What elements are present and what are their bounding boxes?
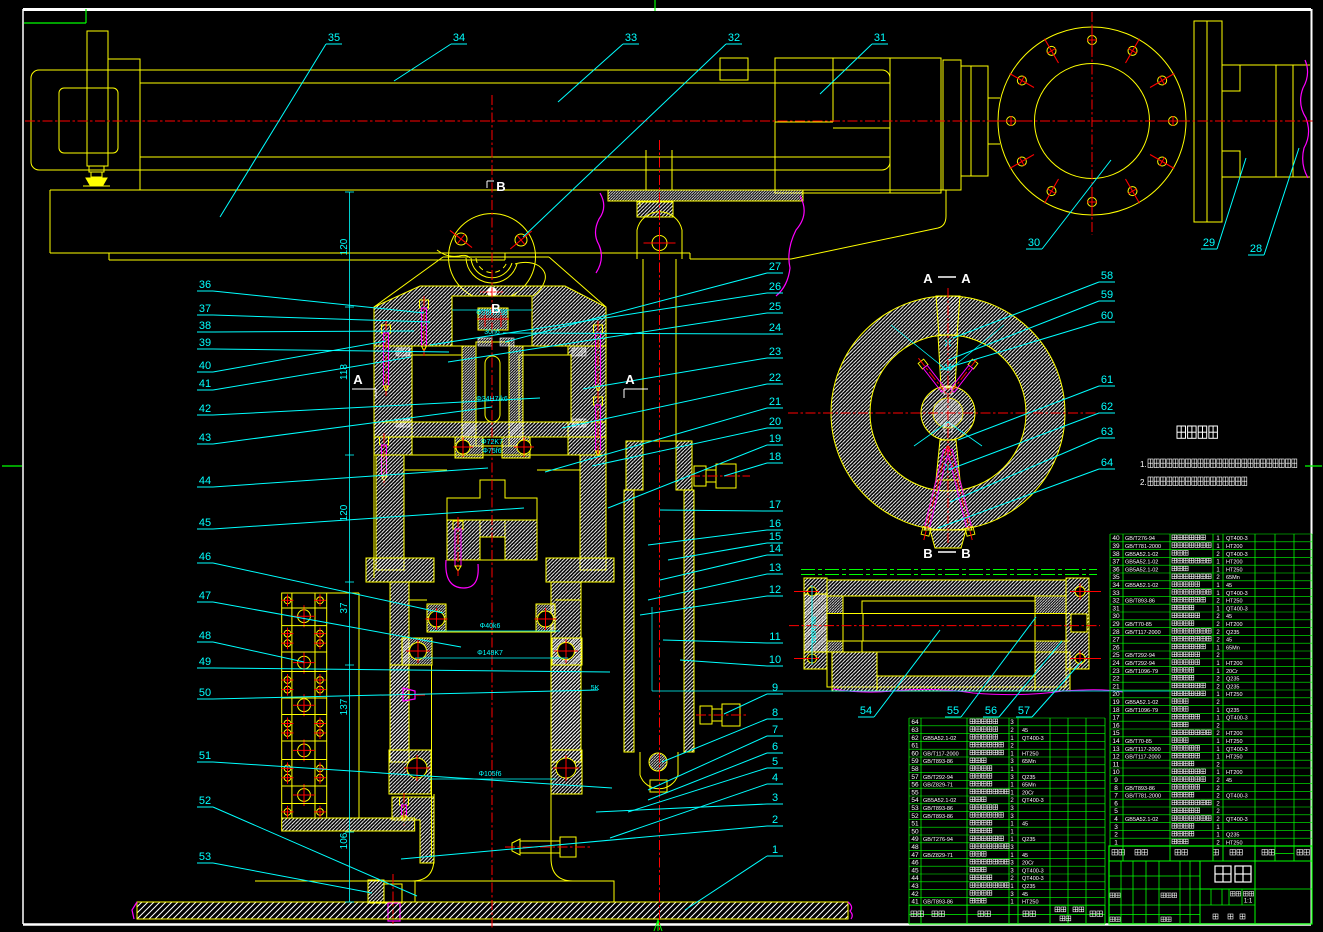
svg-text:2: 2 [1216,575,1220,581]
svg-text:HT200: HT200 [1226,560,1243,566]
svg-text:GB/T893-86: GB/T893-86 [923,806,953,812]
svg-text:29: 29 [1112,621,1120,628]
svg-text:Q235: Q235 [1226,630,1239,636]
svg-text:A: A [353,372,363,387]
svg-text:QT400-3: QT400-3 [1022,876,1044,882]
svg-text:2: 2 [1216,622,1220,628]
svg-text:53: 53 [199,851,211,863]
svg-text:62: 62 [911,735,919,742]
svg-text:45: 45 [1022,728,1028,734]
svg-text:HT250: HT250 [1022,900,1039,906]
svg-text:HT200: HT200 [1226,731,1243,737]
svg-text:45: 45 [1226,614,1232,620]
svg-text:Φ35H7/k6: Φ35H7/k6 [812,616,818,644]
svg-text:17: 17 [1112,715,1120,722]
svg-text:31: 31 [1112,605,1120,612]
svg-text:1: 1 [1216,544,1220,550]
svg-text:14: 14 [769,543,781,555]
svg-text:11: 11 [769,631,780,643]
svg-text:1: 1 [1216,591,1220,597]
svg-text:1: 1 [1216,567,1220,573]
svg-text:Q235: Q235 [1022,775,1035,781]
svg-text:GB/T1096-79: GB/T1096-79 [1125,708,1158,714]
svg-text:2: 2 [1216,638,1220,644]
svg-text:21: 21 [769,396,781,408]
svg-text:23: 23 [769,346,781,358]
svg-text:45: 45 [1226,778,1232,784]
svg-text:31: 31 [874,32,886,44]
svg-text:17: 17 [769,499,781,511]
svg-text:GB/T893-86: GB/T893-86 [923,814,953,820]
svg-text:7: 7 [772,724,778,736]
svg-text:5: 5 [1114,808,1118,815]
svg-text:2: 2 [1010,728,1014,734]
svg-text:Q235: Q235 [1226,708,1239,714]
svg-text:45: 45 [1022,822,1028,828]
svg-text:1: 1 [1010,822,1014,828]
svg-text:3: 3 [1010,814,1014,820]
svg-text:65Mn: 65Mn [1226,645,1240,651]
svg-text:HT250: HT250 [1226,755,1243,761]
svg-text:2: 2 [1216,552,1220,558]
svg-text:GB5A52.1-02: GB5A52.1-02 [1125,552,1158,558]
svg-text:48: 48 [911,844,919,851]
svg-text:34: 34 [453,32,465,44]
svg-text:39: 39 [1112,543,1120,550]
svg-text:19: 19 [1112,699,1120,706]
svg-text:14: 14 [1112,738,1120,745]
svg-text:51: 51 [911,821,919,828]
svg-text:GB/T117-2000: GB/T117-2000 [1125,630,1161,636]
svg-text:30: 30 [1112,613,1120,620]
svg-text:GB/T292-94: GB/T292-94 [1125,661,1155,667]
svg-text:Φ72K7: Φ72K7 [481,439,503,446]
svg-text:GB/T893-86: GB/T893-86 [923,900,953,906]
svg-text:Q235: Q235 [1022,837,1035,843]
svg-text:HT250: HT250 [1226,567,1243,573]
svg-text:20Cr: 20Cr [1022,790,1034,796]
svg-text:1: 1 [1010,884,1014,890]
svg-text:26: 26 [769,281,781,293]
svg-text:2: 2 [1216,700,1220,706]
svg-text:35: 35 [1112,574,1120,581]
svg-text:39: 39 [199,337,211,349]
svg-text:27: 27 [769,261,781,273]
svg-text:QT400-3: QT400-3 [1226,591,1248,597]
svg-text:42: 42 [911,891,919,898]
svg-text:137: 137 [339,698,350,715]
svg-text:3: 3 [1010,775,1014,781]
svg-text:19: 19 [769,433,781,445]
svg-text:QT400-3: QT400-3 [1022,868,1044,874]
svg-text:37: 37 [199,303,211,315]
svg-text:GB/T117-2000: GB/T117-2000 [1125,747,1161,753]
svg-text:57: 57 [911,774,919,781]
svg-text:13: 13 [1112,746,1120,753]
svg-text:2: 2 [1216,817,1220,823]
svg-text:45: 45 [911,867,919,874]
svg-text:27: 27 [1112,637,1120,644]
svg-text:38: 38 [1112,551,1120,558]
svg-text:HT200: HT200 [1226,770,1243,776]
svg-text:GB/Z829-71: GB/Z829-71 [923,783,953,789]
svg-text:2: 2 [1216,809,1220,815]
svg-text:34: 34 [1112,582,1120,589]
svg-text:2: 2 [1216,684,1220,690]
svg-text:120: 120 [339,238,350,255]
svg-text:1: 1 [1216,583,1220,589]
svg-text:1: 1 [1216,669,1220,675]
svg-text:B: B [923,546,932,561]
svg-text:HT200: HT200 [1226,544,1243,550]
svg-text:6: 6 [772,741,778,753]
svg-text:1: 1 [1216,770,1220,776]
svg-text:26: 26 [1112,644,1120,651]
svg-text:24: 24 [769,322,781,334]
svg-text:QT400-3: QT400-3 [1022,736,1044,742]
svg-text:2: 2 [1216,778,1220,784]
svg-text:56: 56 [985,705,997,717]
svg-text:GB/T292-94: GB/T292-94 [1125,653,1155,659]
svg-text:GB/T893-86: GB/T893-86 [1125,786,1155,792]
svg-text:45: 45 [1022,892,1028,898]
svg-text:QT400-3: QT400-3 [1226,817,1248,823]
svg-text:1: 1 [1216,661,1220,667]
svg-text:41: 41 [911,899,919,906]
svg-text:1: 1 [1010,783,1014,789]
svg-text:37: 37 [339,602,350,614]
svg-text:GB/T893-86: GB/T893-86 [923,759,953,765]
svg-text:1: 1 [1216,825,1220,831]
svg-text:GB/T276-94: GB/T276-94 [923,837,953,843]
svg-text:1:1: 1:1 [1244,899,1253,905]
svg-text:GB/T70-85: GB/T70-85 [1125,739,1152,745]
svg-text:2: 2 [1216,630,1220,636]
svg-text:HT250: HT250 [1226,599,1243,605]
svg-text:45: 45 [1226,583,1232,589]
svg-text:61: 61 [911,743,919,750]
svg-text:8: 8 [1114,785,1118,792]
svg-text:45: 45 [1022,853,1028,859]
svg-text:45: 45 [199,517,211,529]
svg-text:2: 2 [1216,653,1220,659]
svg-text:2: 2 [1216,731,1220,737]
svg-text:QT400-3: QT400-3 [1226,794,1248,800]
svg-text:50: 50 [199,687,211,699]
svg-text:22: 22 [769,372,781,384]
svg-text:3: 3 [772,792,778,804]
svg-text:63: 63 [1101,426,1113,438]
svg-text:Φ105f6: Φ105f6 [478,771,501,778]
svg-text:29: 29 [1203,237,1215,249]
svg-text:3: 3 [1114,824,1118,831]
svg-text:1: 1 [772,844,778,856]
svg-text:55: 55 [947,705,959,717]
svg-text:16: 16 [769,518,781,530]
svg-text:49: 49 [911,836,919,843]
svg-text:HT250: HT250 [1226,739,1243,745]
svg-text:54: 54 [911,797,919,804]
svg-text:2: 2 [1216,599,1220,605]
svg-text:46: 46 [911,860,919,867]
svg-text:B: B [496,179,505,194]
svg-text:GB/T117-2000: GB/T117-2000 [1125,755,1161,761]
svg-text:GB5A52.1-02: GB5A52.1-02 [1125,700,1158,706]
svg-text:5: 5 [772,756,778,768]
svg-text:Q235: Q235 [1226,677,1239,683]
svg-text:GB5A52.1-02: GB5A52.1-02 [923,736,956,742]
svg-text:6: 6 [1114,800,1118,807]
svg-text:2: 2 [1114,832,1118,839]
svg-text:45: 45 [1226,638,1232,644]
svg-text:3: 3 [1010,806,1014,812]
svg-text:HT200: HT200 [1226,622,1243,628]
svg-text:3: 3 [1010,759,1014,765]
svg-text:1: 1 [1216,645,1220,651]
svg-text:58: 58 [1101,270,1113,282]
svg-text:30: 30 [1028,237,1040,249]
svg-text:28: 28 [1250,243,1262,255]
svg-text:Φ75f6: Φ75f6 [482,448,501,455]
svg-text:Φ148K7: Φ148K7 [477,650,503,657]
svg-text:56: 56 [911,782,919,789]
svg-text:47: 47 [911,852,919,859]
svg-text:1: 1 [1114,839,1118,846]
svg-text:2: 2 [1216,614,1220,620]
svg-text:10: 10 [1112,769,1120,776]
svg-text:11: 11 [1113,761,1120,768]
svg-text:43: 43 [911,883,919,890]
svg-text:7: 7 [1114,793,1118,800]
svg-text:49: 49 [199,656,211,668]
svg-text:4: 4 [1114,816,1118,823]
svg-text:GB/T893-86: GB/T893-86 [1125,599,1155,605]
svg-text:23: 23 [1112,668,1120,675]
svg-text:61: 61 [1101,374,1113,386]
svg-text:QT400-3: QT400-3 [1226,606,1248,612]
svg-text:64: 64 [911,719,919,726]
svg-text:1: 1 [1216,708,1220,714]
svg-text:51: 51 [199,750,211,762]
svg-text:59: 59 [911,758,919,765]
svg-text:1: 1 [1010,853,1014,859]
svg-text:9: 9 [1114,777,1118,784]
svg-text:22: 22 [1112,676,1120,683]
svg-text:1: 1 [1010,837,1014,843]
svg-text:A: A [961,271,971,286]
svg-text:20: 20 [1112,691,1120,698]
svg-text:106: 106 [339,832,350,849]
svg-text:12: 12 [769,584,781,596]
svg-text:2: 2 [1010,744,1014,750]
svg-text:62: 62 [1101,401,1113,413]
svg-text:GB/T117-2000: GB/T117-2000 [923,751,959,757]
svg-text:QT400-3: QT400-3 [1226,552,1248,558]
svg-text:1: 1 [1216,536,1220,542]
svg-text:2: 2 [1216,794,1220,800]
svg-text:2: 2 [1216,801,1220,807]
svg-text:GB/T292-94: GB/T292-94 [923,775,953,781]
svg-text:1.: 1. [1140,460,1147,469]
svg-text:65Mn: 65Mn [1022,759,1036,765]
svg-text:20: 20 [769,416,781,428]
svg-text:2: 2 [1010,798,1014,804]
svg-text:GB5A52.1-02: GB5A52.1-02 [1125,567,1158,573]
svg-text:2: 2 [1216,786,1220,792]
svg-text:18: 18 [769,451,781,463]
svg-text:38: 38 [199,320,211,332]
svg-text:36: 36 [1112,566,1120,573]
svg-text:HT250: HT250 [1022,751,1039,757]
svg-text:25: 25 [1112,652,1120,659]
svg-text:QT400-3: QT400-3 [1226,747,1248,753]
svg-text:52: 52 [199,795,211,807]
svg-text:2: 2 [1216,762,1220,768]
svg-text:20Cr: 20Cr [1022,861,1034,867]
svg-text:GB5A52.1-02: GB5A52.1-02 [1125,583,1158,589]
svg-text:2.: 2. [1140,478,1147,487]
svg-text:33: 33 [625,32,637,44]
svg-text:40: 40 [1112,535,1120,542]
svg-text:GB/T1096-79: GB/T1096-79 [1125,669,1158,675]
svg-text:Q235: Q235 [1226,833,1239,839]
svg-text:GB/T70-85: GB/T70-85 [1125,622,1152,628]
svg-text:1: 1 [1010,736,1014,742]
svg-text:8: 8 [772,707,778,719]
svg-text:Q235: Q235 [1226,684,1239,690]
svg-text:64: 64 [1101,457,1113,469]
svg-text:1: 1 [1216,739,1220,745]
svg-text:43: 43 [199,432,211,444]
svg-text:25: 25 [769,301,781,313]
svg-text:52: 52 [911,813,919,820]
svg-text:120: 120 [339,504,350,521]
svg-text:32: 32 [728,32,740,44]
svg-text:GB5A52.1-02: GB5A52.1-02 [923,798,956,804]
svg-text:44: 44 [199,475,211,487]
svg-text:Φ40k6: Φ40k6 [480,623,501,630]
svg-text:18: 18 [1112,707,1120,714]
svg-text:118: 118 [339,364,350,380]
svg-text:3: 3 [1010,861,1014,867]
svg-text:A: A [625,372,635,387]
svg-text:1: 1 [1216,833,1220,839]
svg-text:1: 1 [1216,747,1220,753]
svg-text:54: 54 [860,705,872,717]
svg-text:13: 13 [769,562,781,574]
svg-text:58: 58 [911,766,919,773]
svg-text:3: 3 [1010,868,1014,874]
svg-text:3: 3 [1010,892,1014,898]
svg-text:65Mn: 65Mn [1022,783,1036,789]
svg-text:3: 3 [1010,720,1014,726]
svg-text:53: 53 [911,805,919,812]
svg-text:1: 1 [1010,790,1014,796]
svg-text:33: 33 [1112,590,1120,597]
svg-text:1: 1 [1010,767,1014,773]
svg-text:GB5A52.1-02: GB5A52.1-02 [1125,560,1158,566]
svg-text:1: 1 [1216,606,1220,612]
svg-text:12: 12 [1112,754,1120,761]
svg-text:63: 63 [911,727,919,734]
svg-text:QT400-3: QT400-3 [1226,536,1248,542]
svg-text:24: 24 [1112,660,1120,667]
svg-text:1: 1 [1216,755,1220,761]
svg-text:48: 48 [199,630,211,642]
svg-text:1: 1 [1216,560,1220,566]
svg-text:1: 1 [1216,692,1220,698]
svg-text:2: 2 [1216,723,1220,729]
svg-text:57: 57 [1018,705,1030,717]
svg-text:B: B [961,546,970,561]
svg-text:60: 60 [1101,310,1113,322]
svg-text:A: A [923,271,933,286]
svg-text:1: 1 [1010,900,1014,906]
svg-text:37: 37 [1112,559,1120,566]
svg-text:50: 50 [911,828,919,835]
svg-text:41: 41 [199,378,211,390]
svg-text:40: 40 [199,360,211,372]
svg-text:3: 3 [1010,845,1014,851]
svg-text:46: 46 [199,551,211,563]
svg-text:1: 1 [1010,751,1014,757]
svg-text:GB/T781-2000: GB/T781-2000 [1125,544,1161,550]
svg-text:GB5A52.1-02: GB5A52.1-02 [1125,817,1158,823]
svg-text:60: 60 [911,750,919,757]
svg-text:59: 59 [1101,289,1113,301]
svg-text:4: 4 [772,772,778,784]
svg-text:16: 16 [1112,722,1120,729]
svg-text:Q235: Q235 [1022,884,1035,890]
svg-text:2: 2 [1216,677,1220,683]
svg-text:35: 35 [328,32,340,44]
svg-text:HT200: HT200 [1226,661,1243,667]
svg-text:10: 10 [769,654,781,666]
svg-text:HT250: HT250 [1226,692,1243,698]
svg-text:15: 15 [769,531,781,543]
svg-text:21: 21 [1112,683,1120,690]
svg-text:1: 1 [1216,716,1220,722]
svg-text:B: B [491,301,500,316]
svg-text:GB/Z829-71: GB/Z829-71 [923,853,953,859]
svg-text:5K: 5K [591,685,600,692]
svg-text:2: 2 [1010,876,1014,882]
svg-text:65Mn: 65Mn [1226,575,1240,581]
svg-text:47: 47 [199,590,211,602]
svg-text:28: 28 [1112,629,1120,636]
svg-text:2: 2 [772,814,778,826]
svg-text:15: 15 [1112,730,1120,737]
svg-text:GB/T276-94: GB/T276-94 [1125,536,1155,542]
svg-text:42: 42 [199,403,211,415]
svg-text:QT400-3: QT400-3 [1022,798,1044,804]
svg-text:9: 9 [772,682,778,694]
svg-text:44: 44 [911,875,919,882]
svg-text:20Cr: 20Cr [1226,669,1238,675]
svg-text:1: 1 [1010,829,1014,835]
svg-text:QT400-3: QT400-3 [1226,716,1248,722]
svg-text:55: 55 [911,789,919,796]
svg-text:36: 36 [199,279,211,291]
svg-text:GB/T781-2000: GB/T781-2000 [1125,794,1161,800]
svg-text:32: 32 [1112,598,1120,605]
